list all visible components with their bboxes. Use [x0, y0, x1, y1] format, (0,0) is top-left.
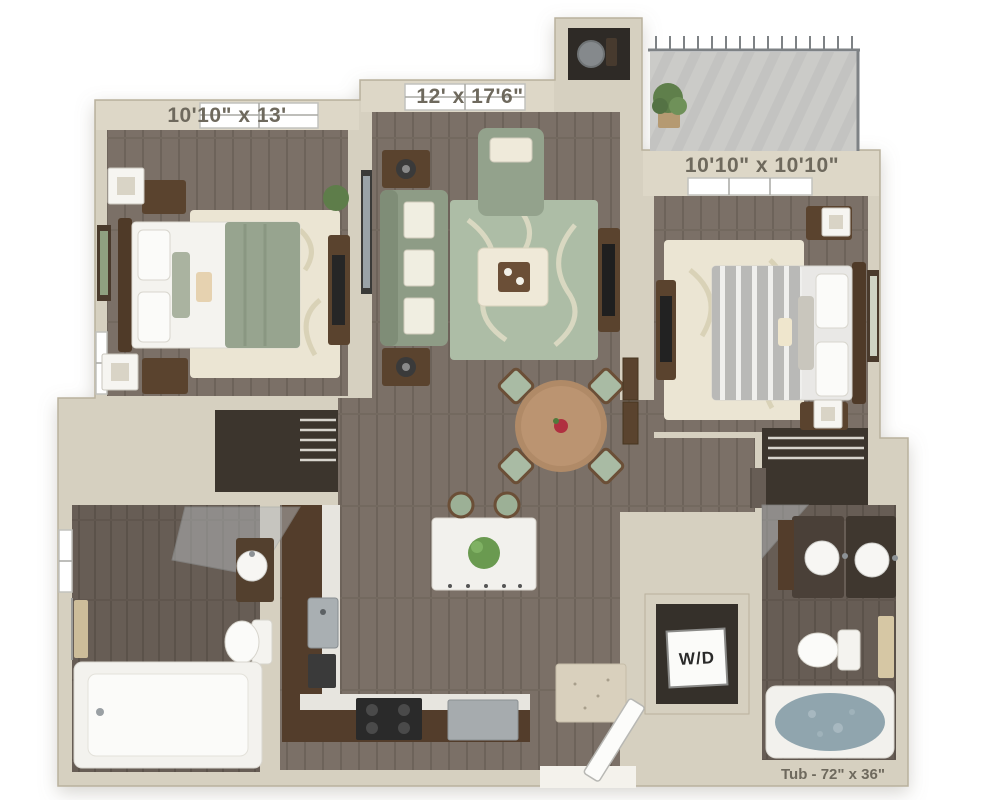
floor-plan-stage: W/D 10'10" x 13'	[0, 0, 1000, 800]
tv-console	[598, 228, 620, 332]
sofa	[380, 190, 448, 346]
bedroom2-balcony-window	[688, 178, 812, 195]
stove	[356, 698, 422, 740]
dresser-tv	[328, 235, 350, 345]
sofa-pillow	[404, 298, 434, 334]
double-vanity	[778, 516, 898, 598]
bed2	[712, 262, 866, 404]
wall-art-frame	[867, 270, 879, 362]
bathroom2-doorway	[750, 468, 766, 508]
bathtub	[74, 662, 262, 768]
bar-stool	[495, 493, 519, 517]
toilet	[798, 630, 860, 670]
bathroom1-window	[59, 530, 72, 592]
towel-rack	[878, 616, 894, 678]
towel-rack	[72, 598, 88, 660]
bed1-headboard	[118, 218, 132, 352]
balcony	[648, 36, 860, 154]
bed2-pillow	[816, 342, 848, 396]
end-table-lamp	[382, 348, 430, 386]
hallway-floor	[338, 398, 372, 512]
nightstand	[142, 358, 188, 394]
vanity-sink	[855, 543, 889, 577]
tub-dimensions-label: Tub - 72" x 36"	[781, 766, 885, 783]
living-dimensions-label: 12' x 17'6"	[416, 85, 523, 108]
bedroom2-dimensions-label: 10'10" x 10'10"	[685, 154, 839, 177]
vanity-sink	[805, 541, 839, 575]
island-plant	[468, 537, 500, 569]
bed2-accent-pillow	[798, 296, 814, 370]
sofa-pillow	[404, 250, 434, 286]
bed1-accent-pillow	[172, 252, 190, 318]
sofa-pillow	[404, 202, 434, 238]
end-table-lamp	[382, 150, 430, 188]
tub-faucet	[96, 708, 104, 716]
cube-shelf-inset	[117, 177, 135, 195]
vanity-tower	[778, 520, 794, 590]
floor-plan-render: W/D 10'10" x 13'	[0, 0, 1000, 800]
bed2-pillow	[816, 274, 848, 328]
kitchen-island	[432, 518, 536, 590]
tv	[602, 244, 615, 316]
wall-art-frame	[97, 225, 111, 301]
wall-art-frame	[361, 170, 372, 294]
bed1-pillow	[138, 230, 170, 280]
washer-dryer-label: W/D	[679, 648, 716, 669]
bathroom1-vanity	[236, 538, 274, 602]
nightstand	[142, 180, 186, 214]
cube-shelf-inset	[111, 363, 129, 381]
dining-area	[498, 368, 625, 485]
bed2-headboard	[852, 262, 866, 404]
toilet	[225, 620, 272, 664]
dishwasher	[308, 654, 336, 688]
soaking-tub	[766, 686, 894, 758]
chaise-pillow	[490, 138, 532, 162]
bed1-throw	[196, 272, 212, 302]
laundry-closet: W/D	[645, 594, 749, 714]
kitchen-sink	[308, 598, 338, 648]
serving-tray	[498, 262, 530, 292]
entry-mat	[556, 664, 626, 722]
dresser-tv	[656, 280, 676, 380]
utility-water-heater	[578, 38, 617, 67]
walkin-closet2-floor	[762, 428, 868, 505]
refrigerator	[448, 700, 518, 740]
bed1-pillow	[138, 292, 170, 342]
plant	[323, 185, 349, 211]
bedroom1-dimensions-label: 10'10" x 13'	[167, 104, 286, 127]
bed1-blanket	[225, 222, 300, 348]
bed2-throw	[778, 318, 792, 346]
ottoman-coffee-table	[478, 248, 548, 306]
chaise-chair	[478, 128, 544, 216]
bar-stool	[449, 493, 473, 517]
bed1	[118, 218, 300, 352]
